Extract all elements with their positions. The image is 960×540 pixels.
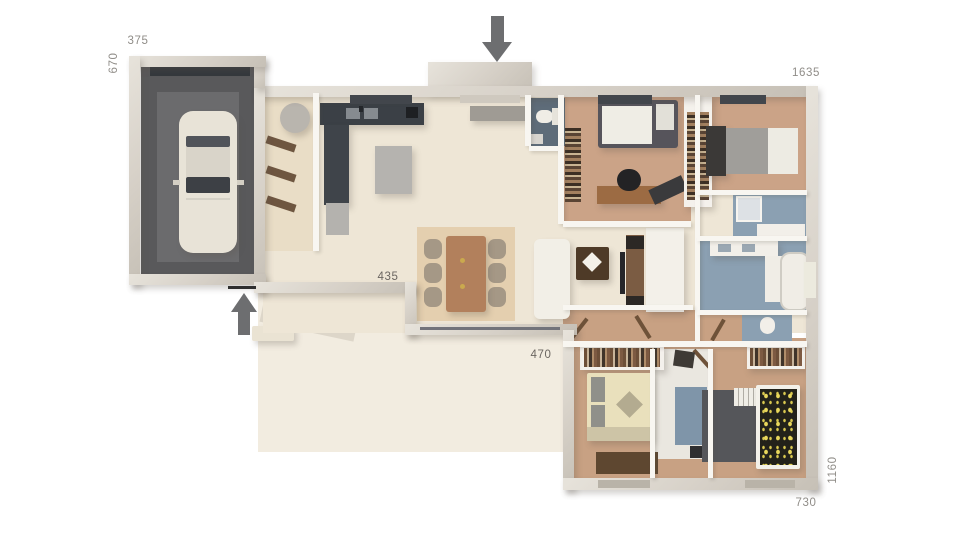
partition-wc-entry-left bbox=[525, 95, 531, 146]
entry-console bbox=[470, 106, 526, 121]
dining-chair-2 bbox=[424, 263, 442, 283]
dining-chair-1 bbox=[424, 239, 442, 259]
car-rear-window bbox=[186, 136, 230, 147]
dining-chair-4 bbox=[488, 239, 506, 259]
wall-garage-bottom bbox=[129, 274, 266, 285]
entry-wc-toilet bbox=[536, 110, 553, 123]
partition-spine bbox=[695, 95, 700, 345]
office-chair bbox=[617, 169, 641, 191]
partition-bed2-south bbox=[697, 190, 807, 195]
side-entrance-arrow-head bbox=[231, 293, 257, 312]
wall-left bbox=[254, 86, 265, 293]
kitchen-faucet bbox=[359, 106, 363, 112]
car-mirror-right bbox=[237, 180, 244, 185]
water-heater bbox=[280, 103, 310, 133]
dimension-label-house-width: 1635 bbox=[792, 67, 820, 79]
entrance-arrow-shaft bbox=[491, 16, 504, 42]
bed3-pouf bbox=[673, 350, 695, 369]
bed4-duvet bbox=[760, 389, 797, 465]
wall-garage-top bbox=[129, 56, 266, 67]
partition-wc-entry-right bbox=[558, 95, 564, 146]
shower1-tray bbox=[736, 196, 762, 222]
bed2-headboard bbox=[706, 126, 726, 176]
dimension-label-garage-depth: 670 bbox=[108, 53, 120, 74]
table-candle-1 bbox=[460, 258, 465, 263]
side-entrance-arrow-icon bbox=[231, 293, 257, 335]
window-bed3 bbox=[598, 480, 650, 488]
window-bed4 bbox=[745, 480, 795, 488]
bed2-mattress bbox=[726, 128, 770, 174]
table-candle-2 bbox=[460, 284, 465, 289]
car-windshield bbox=[186, 177, 230, 193]
side-entrance-arrow-shaft bbox=[238, 312, 250, 335]
partition-office-south bbox=[563, 221, 691, 227]
bed3-foot-throw bbox=[587, 427, 653, 441]
wardrobe-bed4-clothes bbox=[750, 348, 802, 366]
partition-wing-north bbox=[563, 341, 807, 347]
entry-door-step bbox=[460, 95, 520, 103]
kitchen-sink-left bbox=[346, 108, 360, 119]
dining-table bbox=[446, 236, 486, 312]
bath-sink-2 bbox=[742, 244, 755, 252]
dimension-label-garage-width: 375 bbox=[128, 35, 149, 47]
office-bookshelf bbox=[565, 128, 581, 202]
side-door-threshold bbox=[228, 286, 256, 289]
partition-shower2-west bbox=[650, 349, 655, 478]
partition-entry-closet bbox=[558, 146, 564, 224]
kitchen-tower bbox=[324, 125, 349, 205]
wardrobe-bed3-clothes bbox=[584, 348, 660, 367]
car-hood-line bbox=[186, 198, 230, 200]
tv-wall-panel bbox=[646, 228, 684, 312]
dining-chair-3 bbox=[424, 287, 442, 307]
car-roof bbox=[186, 147, 230, 177]
bay-window-glass bbox=[420, 327, 560, 330]
window-bedroom2 bbox=[720, 95, 766, 104]
partition-corridor-north bbox=[563, 305, 693, 310]
bed3-pillow-1 bbox=[591, 377, 605, 402]
dining-chair-6 bbox=[488, 287, 506, 307]
partition-shower2-east bbox=[708, 349, 713, 478]
window-office bbox=[598, 95, 652, 104]
dimension-label-bay-left: 435 bbox=[378, 271, 399, 283]
entrance-arrow-icon bbox=[482, 16, 512, 62]
bed3-rug bbox=[596, 452, 658, 474]
wc2-toilet bbox=[760, 317, 775, 334]
window-bathroom bbox=[804, 262, 816, 298]
window-kitchen bbox=[350, 95, 412, 104]
wall-south-kitchen bbox=[254, 282, 416, 293]
entrance-arrow-head bbox=[482, 42, 512, 62]
floor-plan-rendering: 375 670 1635 435 470 730 1160 bbox=[0, 0, 960, 540]
dining-chair-5 bbox=[488, 263, 506, 283]
dimension-label-wing-width: 730 bbox=[796, 497, 817, 509]
speaker-top bbox=[626, 236, 644, 249]
office-bed-duvet bbox=[602, 106, 652, 144]
kitchen-sink-right bbox=[364, 108, 378, 119]
car-mirror-left bbox=[173, 180, 180, 185]
partition-utility bbox=[313, 93, 319, 251]
wall-garage-left bbox=[129, 56, 140, 285]
dimension-label-bay-right: 470 bbox=[531, 349, 552, 361]
kitchen-low-cabinet bbox=[326, 203, 349, 235]
partition-bath-north bbox=[697, 236, 807, 241]
tv-screen bbox=[620, 252, 625, 294]
partition-bath-south bbox=[697, 310, 807, 315]
bath-sink-1 bbox=[718, 244, 731, 252]
wall-wing-west bbox=[563, 330, 574, 490]
office-bed-pillow bbox=[656, 104, 674, 130]
kitchen-island bbox=[375, 146, 412, 194]
kitchen-appliance bbox=[406, 107, 418, 118]
bed2-duvet bbox=[768, 128, 798, 174]
dimension-label-house-depth: 1160 bbox=[827, 456, 839, 483]
entry-wc-sink bbox=[531, 134, 543, 144]
